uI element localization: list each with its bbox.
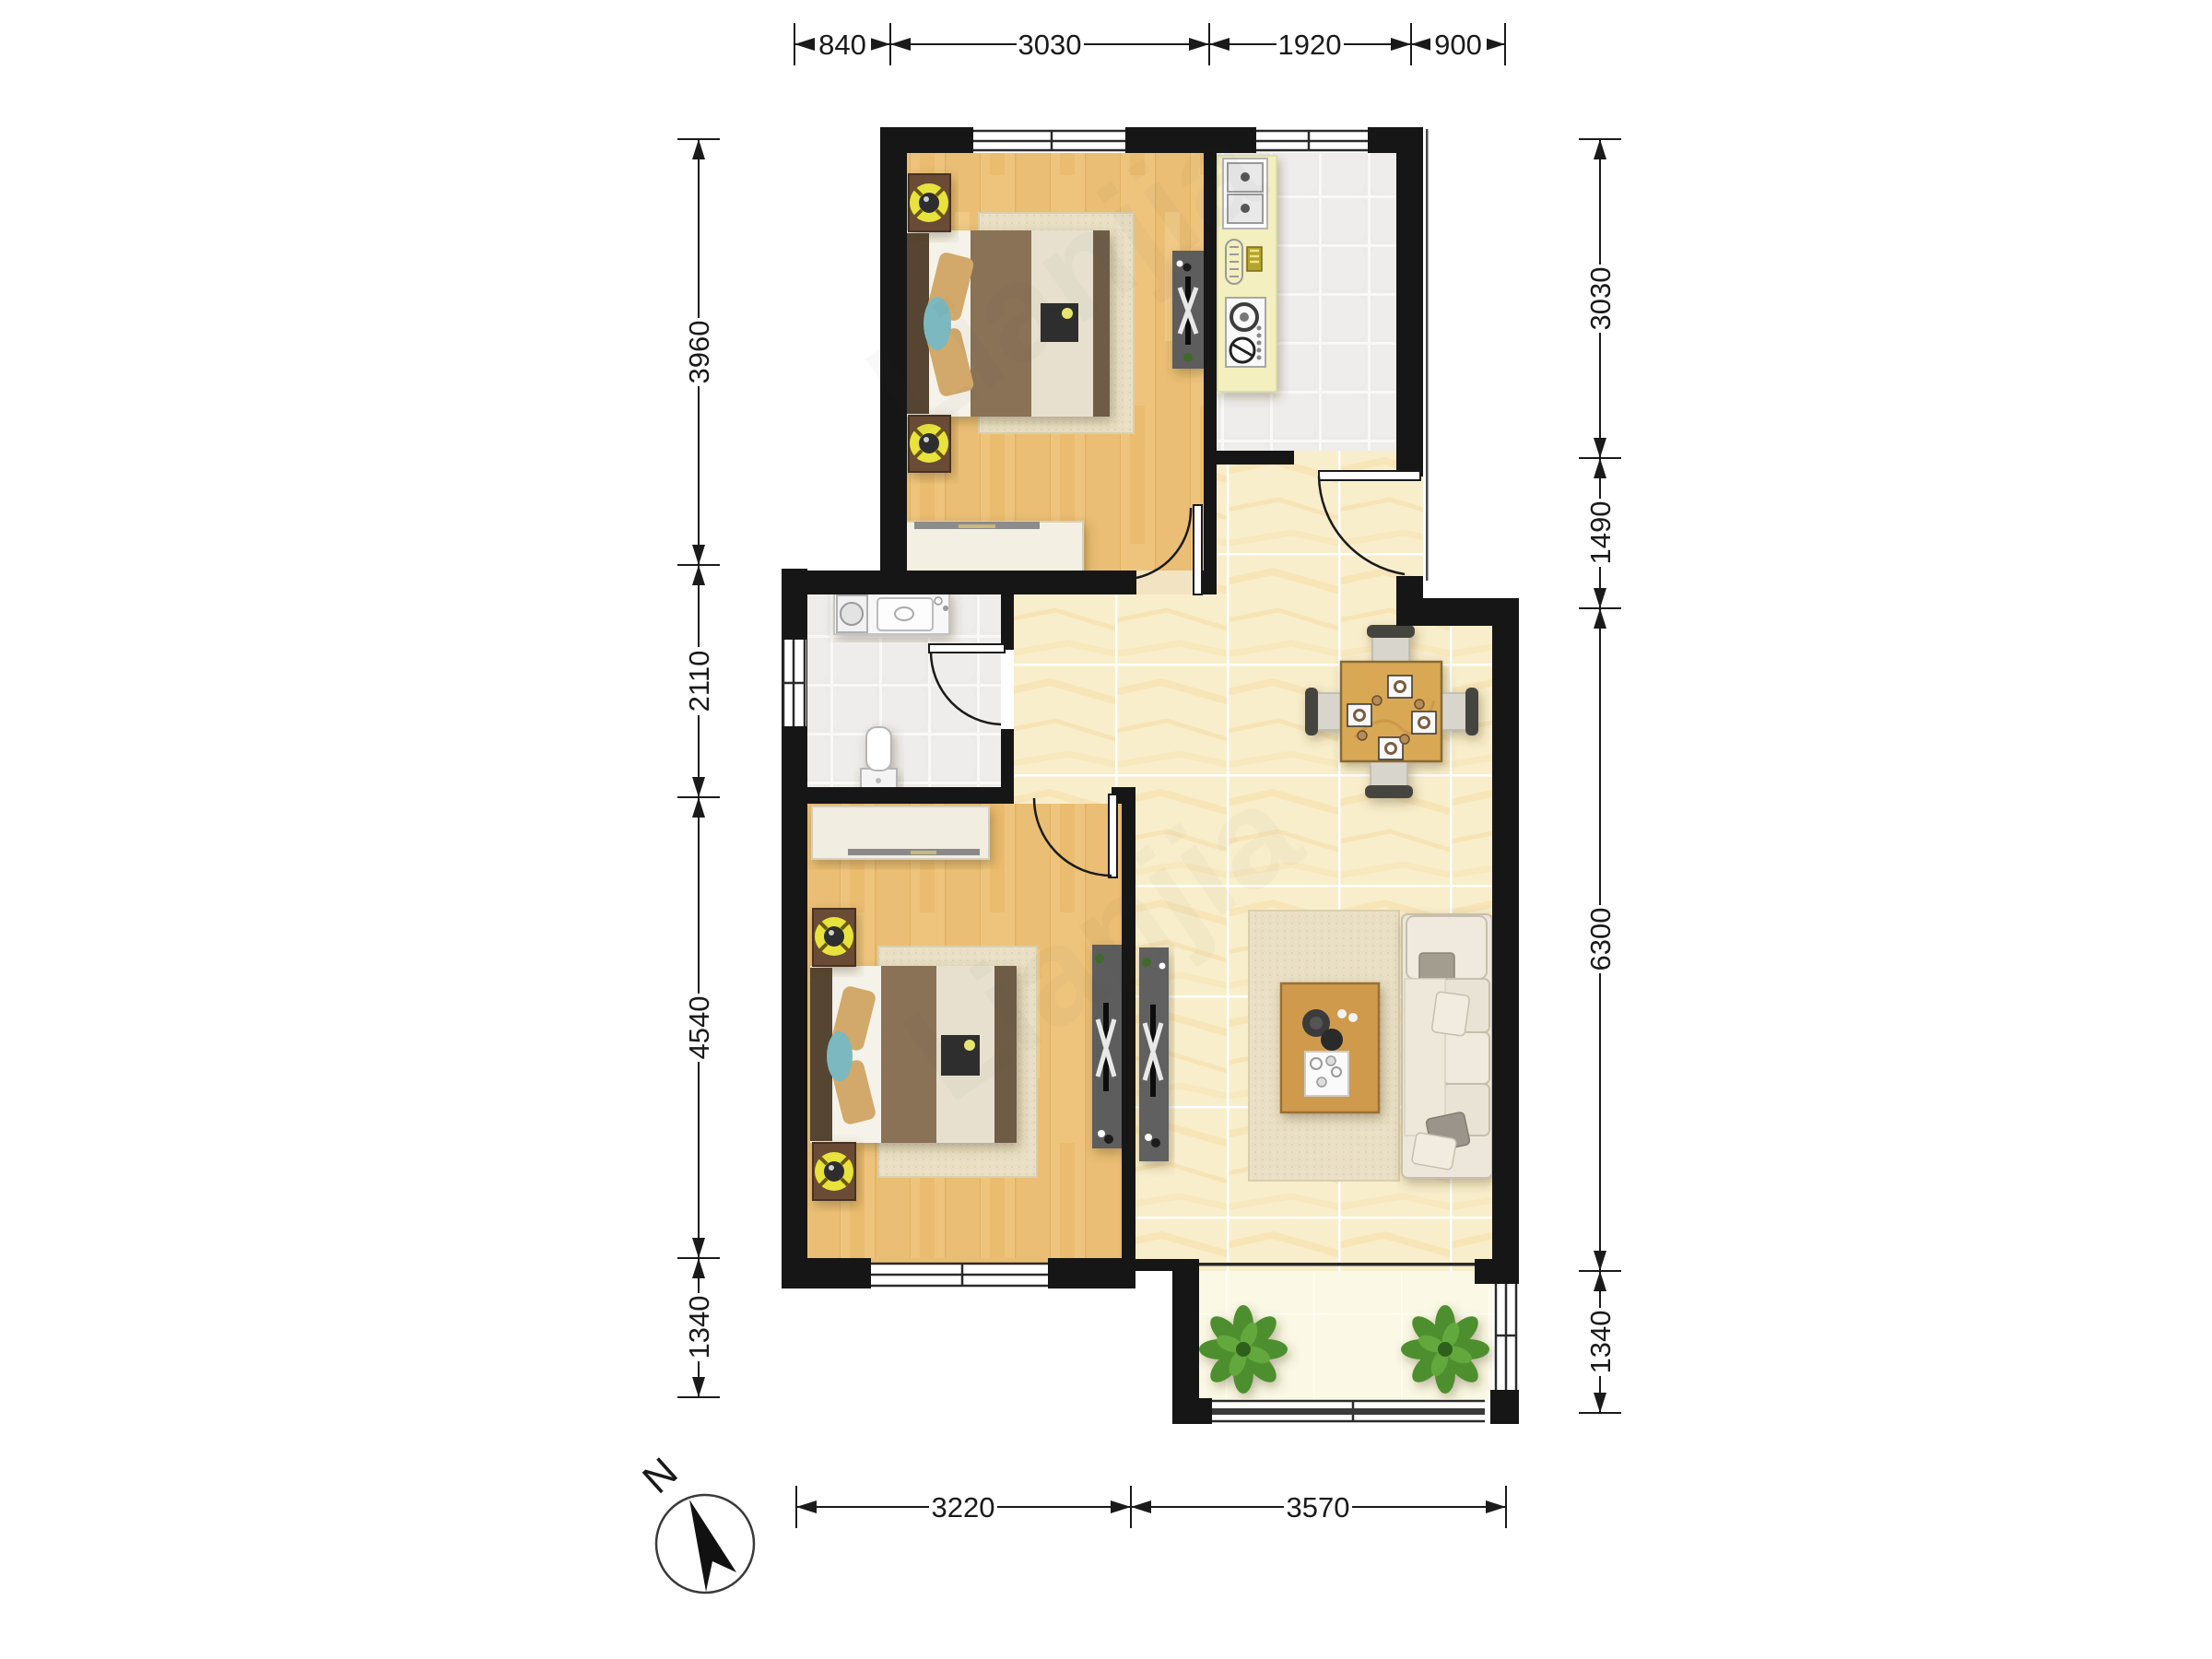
svg-text:4540: 4540 — [683, 996, 715, 1060]
svg-text:6300: 6300 — [1584, 908, 1617, 971]
svg-text:840: 840 — [818, 29, 866, 61]
svg-text:2110: 2110 — [683, 651, 715, 712]
svg-text:3570: 3570 — [1287, 1491, 1350, 1524]
svg-text:3960: 3960 — [683, 321, 715, 384]
svg-text:1340: 1340 — [1584, 1311, 1617, 1374]
svg-text:3030: 3030 — [1018, 29, 1082, 61]
svg-text:1340: 1340 — [683, 1296, 715, 1359]
svg-text:3030: 3030 — [1584, 267, 1617, 331]
svg-text:900: 900 — [1434, 29, 1482, 61]
svg-text:1490: 1490 — [1584, 501, 1617, 565]
svg-text:3220: 3220 — [932, 1491, 995, 1524]
svg-text:1920: 1920 — [1278, 29, 1342, 61]
